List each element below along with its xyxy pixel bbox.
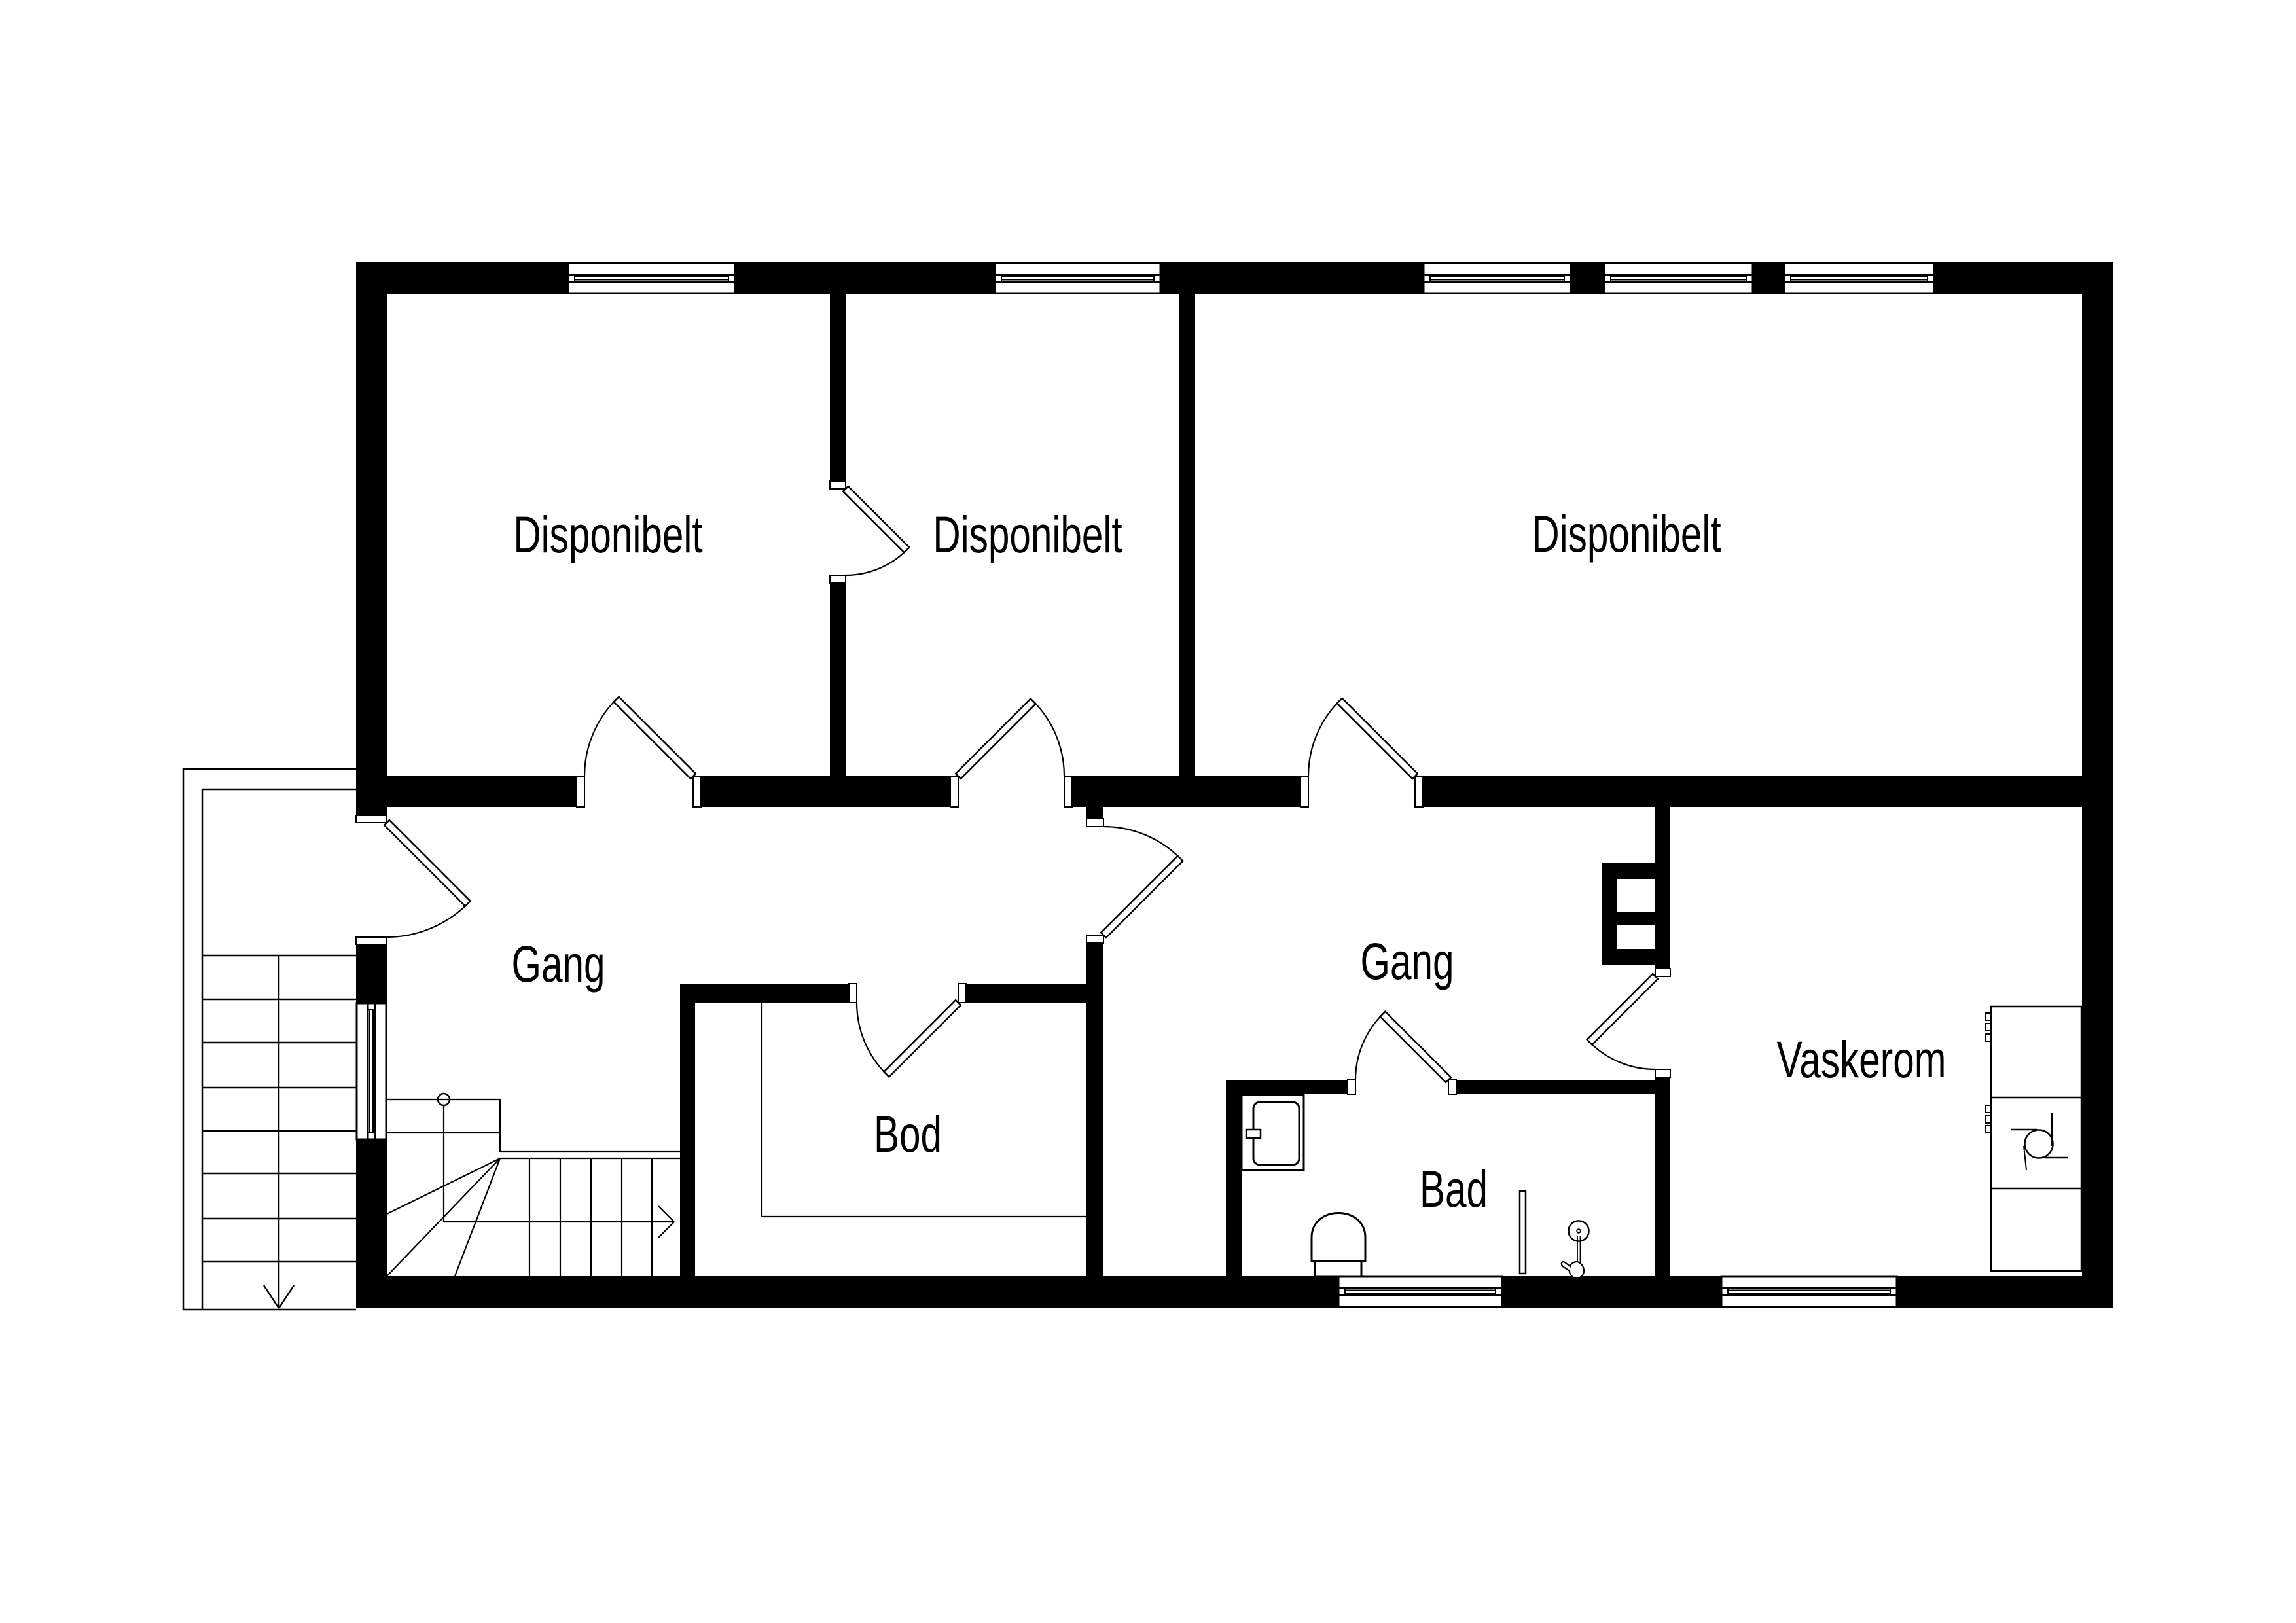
svg-text:Vaskerom: Vaskerom (1777, 1030, 1946, 1088)
svg-text:Gang: Gang (1361, 932, 1454, 990)
svg-text:Gang: Gang (512, 935, 605, 993)
svg-text:Bod: Bod (874, 1105, 942, 1163)
svg-text:Disponibelt: Disponibelt (933, 505, 1122, 563)
svg-text:Disponibelt: Disponibelt (1532, 505, 1721, 563)
svg-text:Disponibelt: Disponibelt (513, 505, 702, 563)
svg-text:Bad: Bad (1420, 1160, 1488, 1218)
